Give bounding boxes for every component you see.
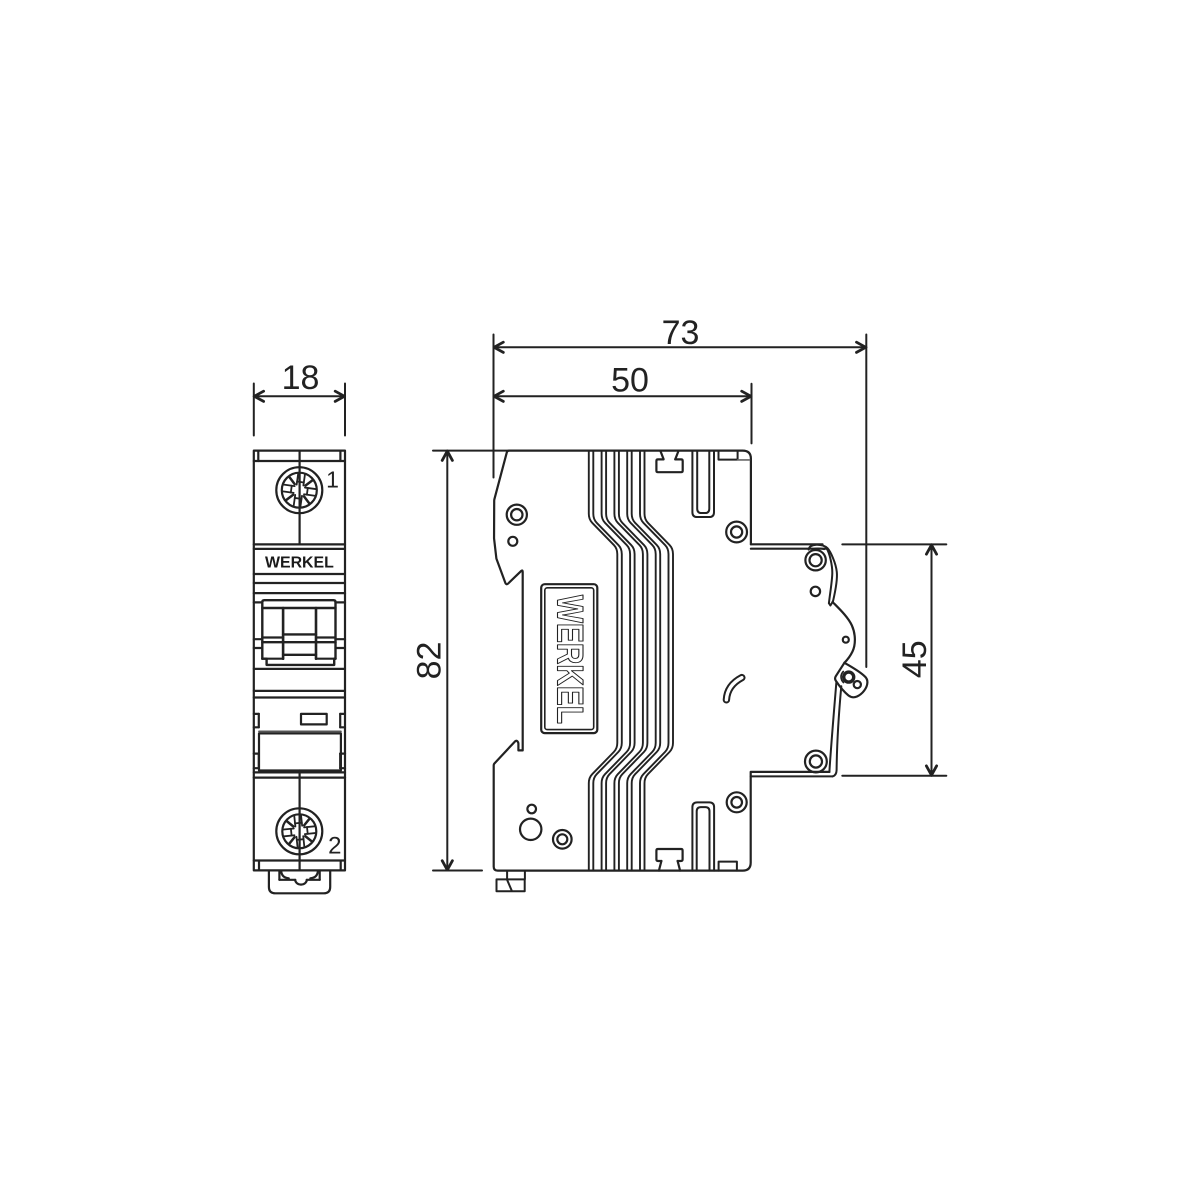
svg-text:1: 1 — [326, 466, 339, 492]
svg-text:50: 50 — [611, 361, 649, 399]
svg-text:WERKEL: WERKEL — [265, 554, 334, 571]
svg-text:WERKEL: WERKEL — [548, 595, 590, 724]
svg-text:2: 2 — [328, 833, 341, 860]
svg-text:18: 18 — [282, 359, 320, 397]
svg-text:73: 73 — [662, 314, 700, 352]
svg-text:45: 45 — [896, 640, 934, 678]
svg-text:82: 82 — [410, 642, 448, 680]
